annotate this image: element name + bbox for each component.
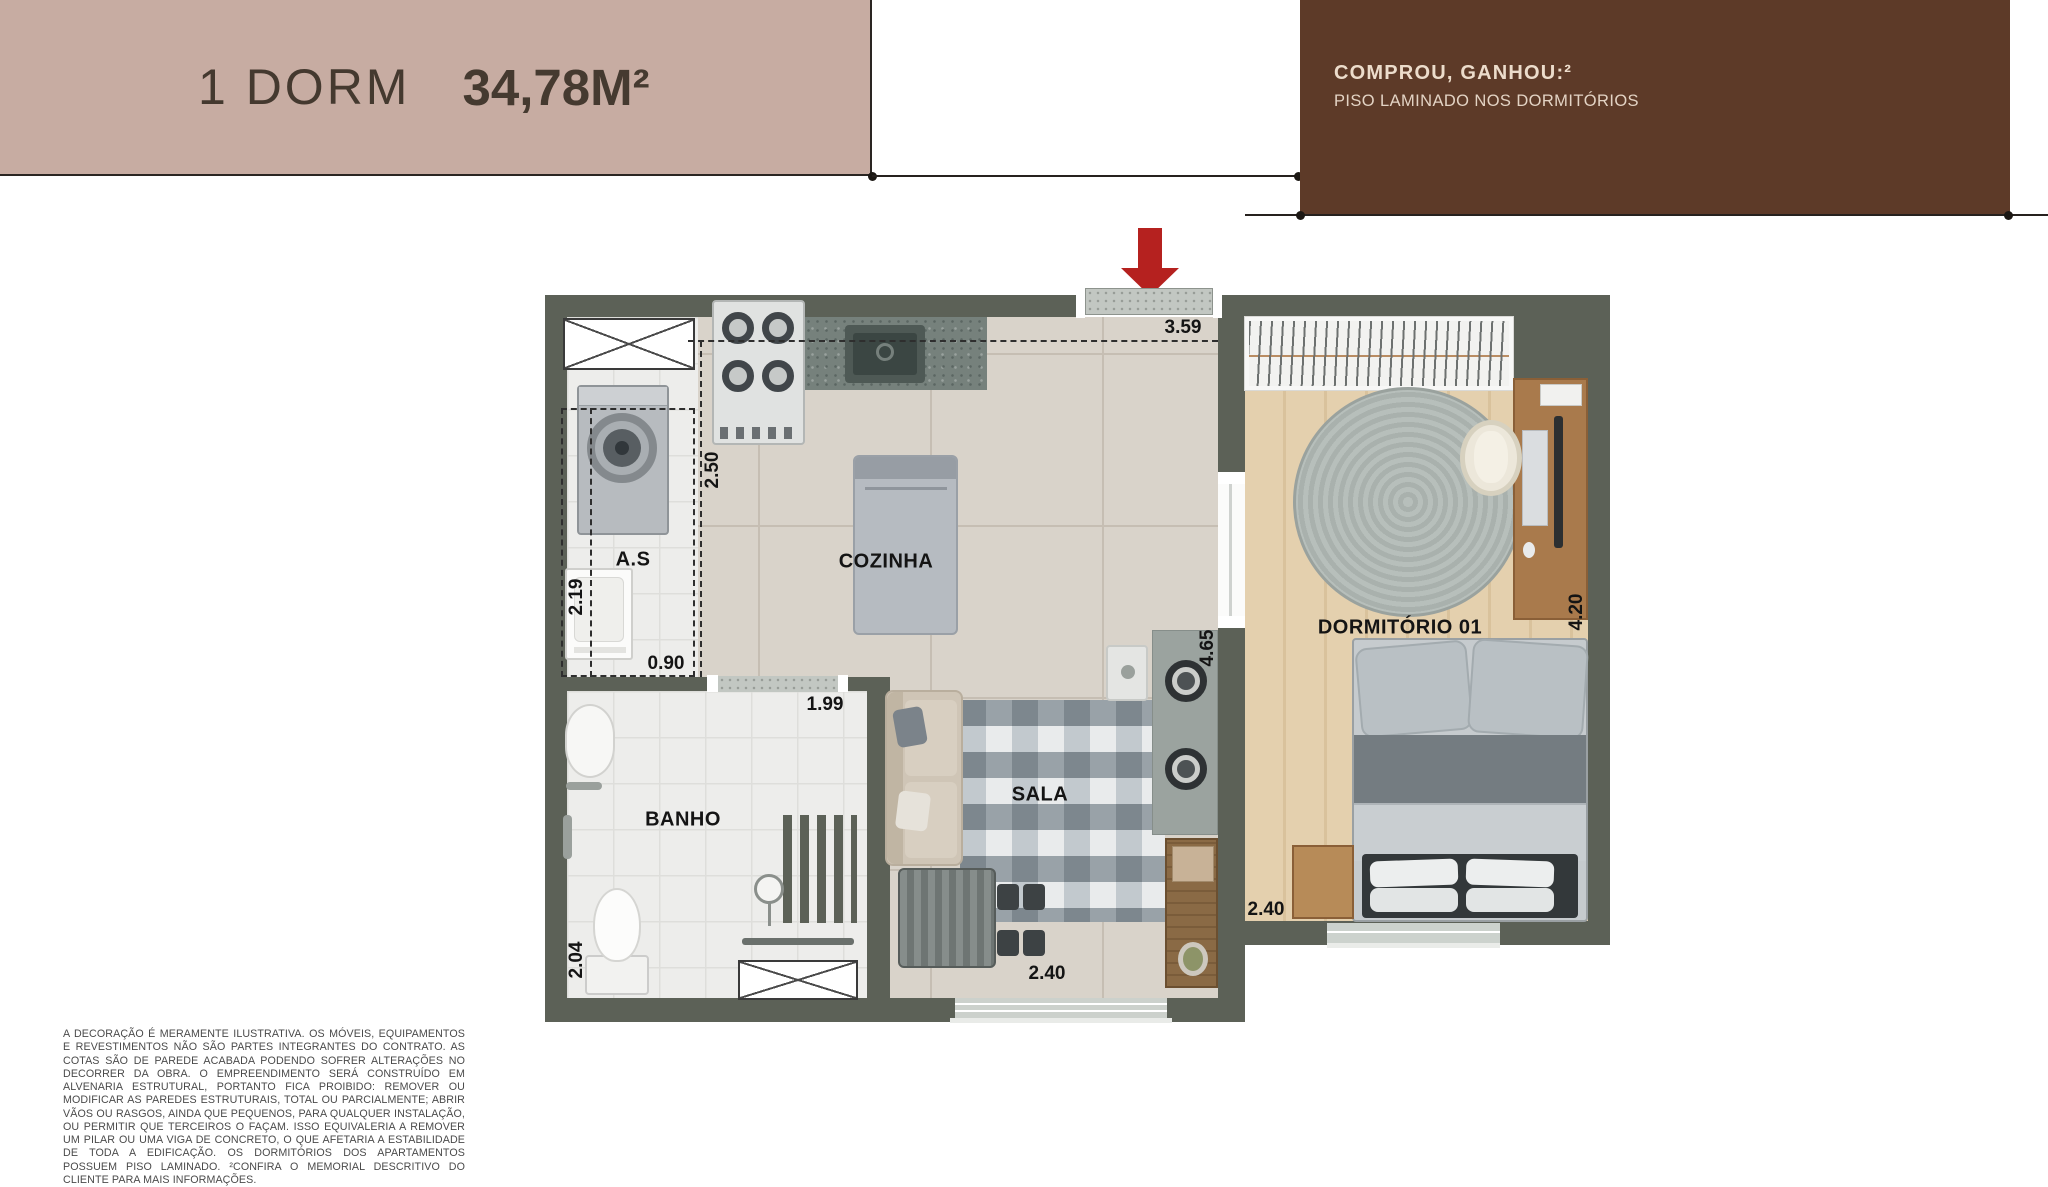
rule-dot [1296,211,1305,220]
bedroom-window-sill [1327,943,1500,948]
bath-door [718,676,838,692]
sofa [885,690,963,866]
shower-head [754,874,784,904]
bath-window-icon [738,960,858,1000]
door-jamb [838,675,848,692]
grab-bar [563,815,572,859]
dim-line-service [590,408,592,677]
dining-table [898,868,996,968]
fridge [853,455,958,635]
disclaimer-text: A DECORAÇÃO É MERAMENTE ILUSTRATIVA. OS … [63,1028,465,1187]
header-rule [872,175,1300,177]
bedroom-door-leaf [1229,483,1232,618]
wall-right [1588,295,1610,945]
door-jamb [1218,616,1245,628]
door-jamb [1076,292,1085,318]
room-label-bedroom: DORMITÓRIO 01 [1318,617,1482,640]
dining-chair [997,930,1019,956]
grab-bar [566,782,602,790]
promo-subtitle: PISO LAMINADO NOS DORMITÓRIOS [1334,92,2010,111]
wall-divider-upper [1218,317,1245,483]
sideboard [1165,838,1218,988]
entrance-door [1085,288,1213,315]
wall-service-bath [545,677,707,691]
bedroom-window [1327,923,1500,943]
desk [1513,378,1588,620]
bed [1352,638,1588,922]
dim-bath-width: 1.99 [807,694,844,716]
promo-box: COMPROU, GANHOU:² PISO LAMINADO NOS DORM… [1300,0,2010,215]
kitchen-sink [845,325,925,383]
door-jamb [1218,472,1245,484]
wardrobe [1245,317,1513,390]
sliding-door-sill [950,1018,1172,1023]
wall-top-left [545,295,1083,317]
room-label-living: SALA [1012,784,1068,807]
room-label-kitchen: COZINHA [839,551,934,574]
plan-area-value: 34,78M² [462,58,649,117]
dim-bedroom-length: 4.20 [1566,594,1588,631]
dim-bath-depth: 2.04 [566,942,588,979]
dining-chair [997,884,1019,910]
promo-rule [1245,214,2048,216]
dim-service-width: 0.90 [648,653,685,675]
dining-chair [1023,930,1045,956]
room-label-bath: BANHO [645,809,721,832]
dim-living-window: 2.40 [1029,963,1066,985]
towel-bar [742,938,854,945]
bath-sink [565,704,615,778]
wall-divider-lower [1218,618,1245,1022]
ventilation-shaft-icon [563,318,695,370]
stove [712,300,805,445]
dim-kitchen-depth: 2.50 [702,452,724,489]
living-sliding-door [955,998,1167,1018]
nightstand [1292,845,1354,919]
plan-type-title: 1 DORM [198,58,410,116]
dim-line-kitchen-width [688,340,1218,342]
room-label-service: A.S [616,549,651,572]
entrance-arrow-icon [1138,228,1162,268]
sliding-door-rail [955,1010,1167,1012]
header-band: 1 DORM 34,78M² [0,0,872,176]
dim-line-kitchen-depth [700,341,702,677]
sliding-door-rail [955,1003,1167,1005]
dining-chair [1023,884,1045,910]
shower-screen [783,815,857,923]
dim-bedroom-width: 2.40 [1248,899,1285,921]
door-jamb [707,675,718,692]
toilet-bowl [593,888,641,962]
dim-box-service [561,408,695,677]
desk-chair [1460,420,1522,496]
door-jamb [1213,292,1222,318]
rule-dot [2004,211,2013,220]
side-table [1106,645,1148,701]
dim-living-length: 4.65 [1197,630,1219,667]
dim-kitchen-width: 3.59 [1165,317,1202,339]
promo-title: COMPROU, GANHOU:² [1334,62,2010,85]
bedroom-window-rail [1327,931,1500,933]
shower-stem [768,902,771,926]
dim-service-depth: 2.19 [566,579,588,616]
